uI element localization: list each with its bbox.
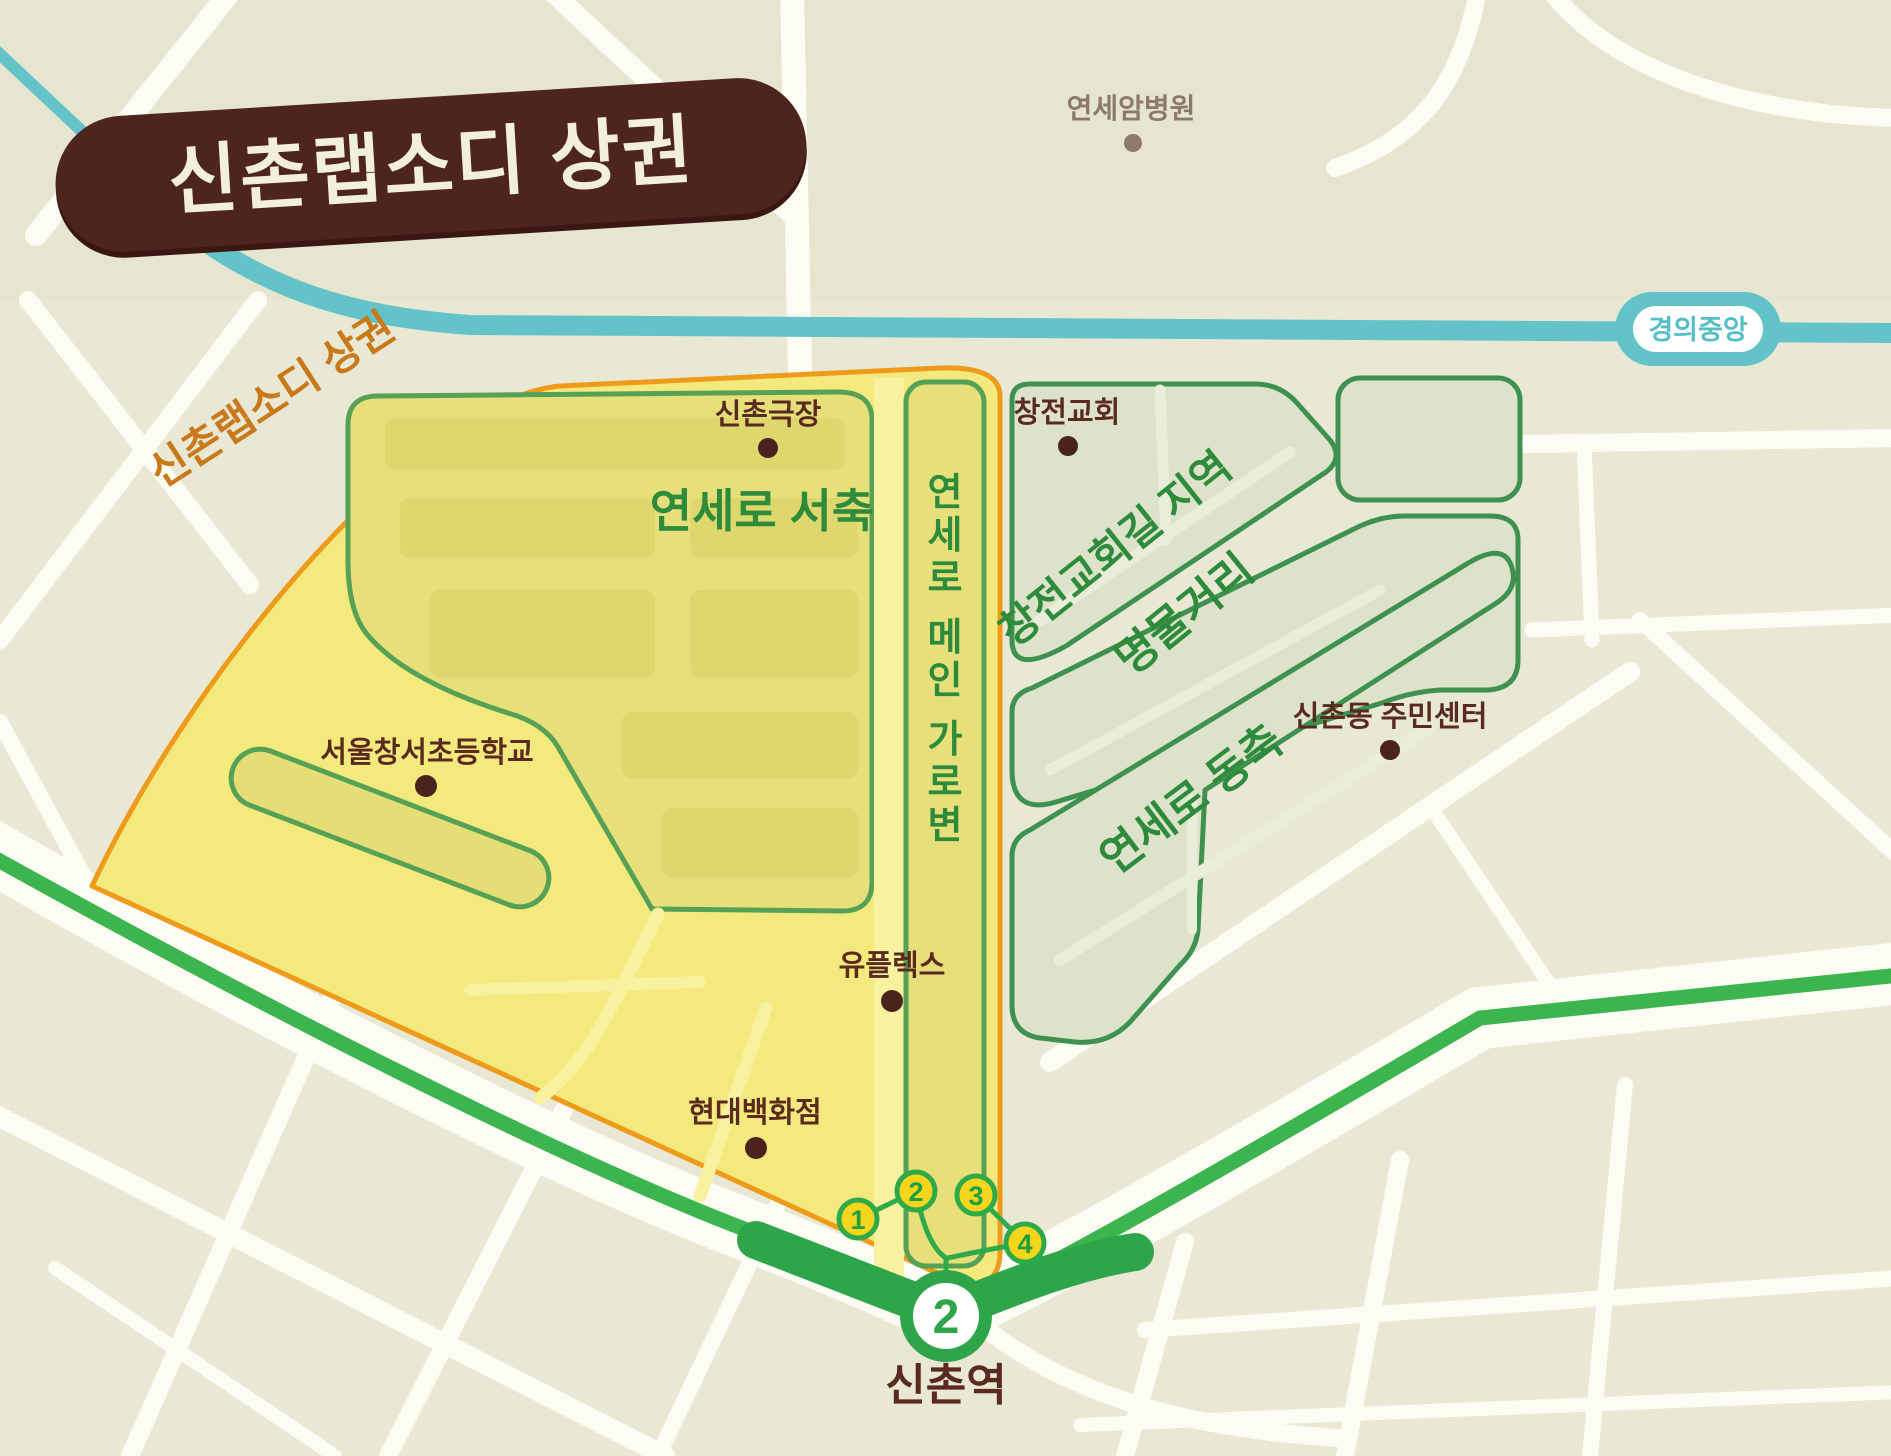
poi-hospital-dot (1124, 134, 1142, 152)
gyeongui-line-label: 경의중앙 (1615, 292, 1781, 366)
exit-4-number: 4 (1017, 1229, 1032, 1259)
zone-west-label: 연세로 서축 (650, 485, 874, 537)
exit-1-badge: 1 (839, 1200, 877, 1238)
exit-3-badge: 3 (957, 1176, 995, 1214)
poi-uplex-dot (881, 990, 903, 1012)
poi-hyundai-label: 현대백화점 (688, 1096, 821, 1129)
gyeongui-line-name: 경의중앙 (1648, 315, 1748, 345)
poi-hyundai-dot (745, 1137, 767, 1159)
exit-2-badge: 2 (897, 1172, 935, 1210)
poi-hospital-label: 연세암병원 (1067, 93, 1196, 124)
exit-2-number: 2 (908, 1177, 923, 1207)
exit-4-badge: 4 (1006, 1224, 1044, 1262)
poi-school-label: 서울창서초등학교 (320, 736, 533, 769)
poi-church-label: 창전교회 (1014, 396, 1121, 429)
exit-1-number: 1 (850, 1205, 865, 1235)
poi-church-dot (1058, 436, 1078, 456)
sinchon-district-map: 1 2 3 4 2 신촌역 경의중앙 연세로 서축 연세로메인가로변 창전교회길… (0, 0, 1891, 1456)
poi-uplex-label: 유플렉스 (839, 949, 946, 982)
station-name-label: 신촌역 (885, 1361, 1006, 1410)
exit-3-number: 3 (968, 1181, 983, 1211)
poi-theater-dot (758, 438, 778, 458)
station-line-number: 2 (933, 1291, 960, 1344)
poi-community-center-dot (1380, 740, 1400, 760)
poi-theater-label: 신촌극장 (715, 398, 822, 431)
poi-school-dot (415, 775, 437, 797)
band-northeast (1338, 378, 1520, 500)
poi-community-center-label: 신촌동 주민센터 (1293, 700, 1488, 733)
map-canvas: 1 2 3 4 2 신촌역 경의중앙 연세로 서축 연세로메인가로변 창전교회길… (0, 0, 1891, 1456)
zone-main-street-label: 연세로메인가로변 (928, 472, 963, 847)
